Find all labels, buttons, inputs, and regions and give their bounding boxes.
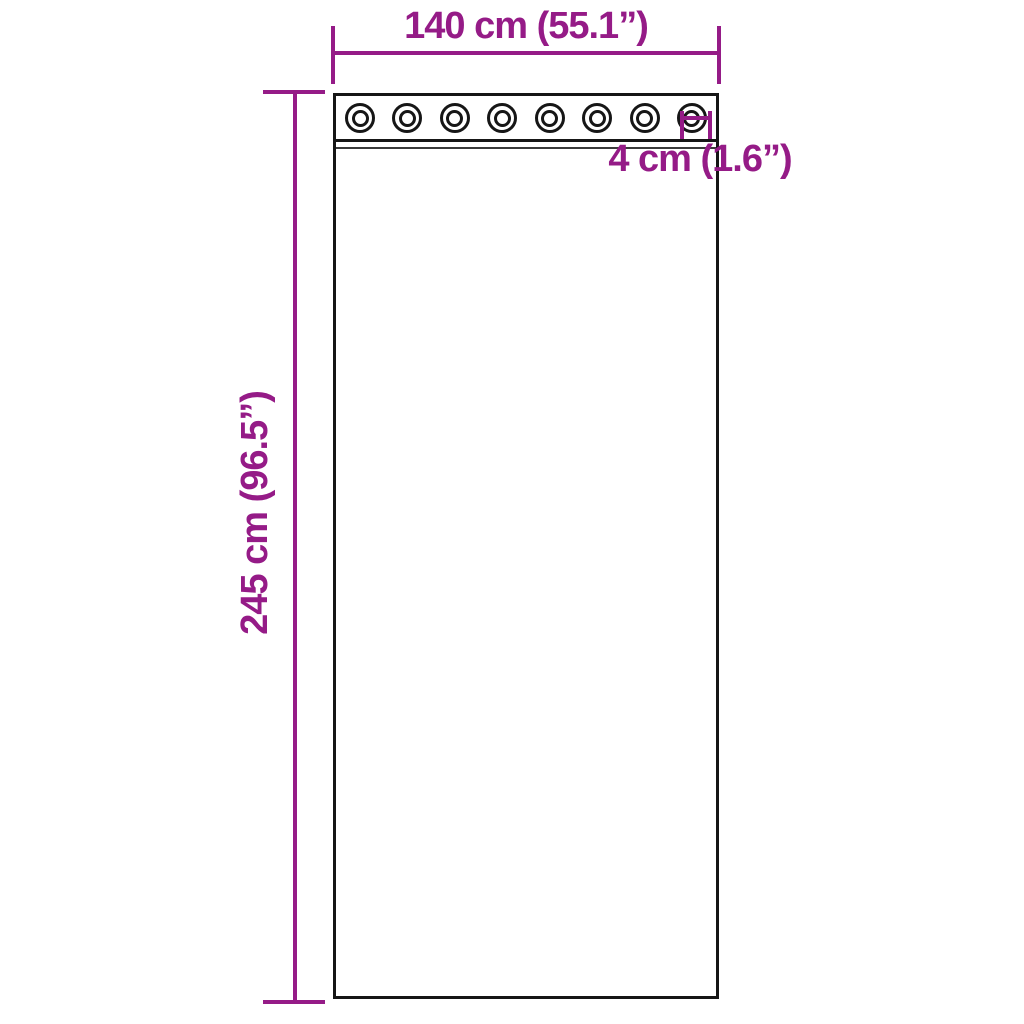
curtain-panel [333, 93, 719, 999]
grommet [345, 103, 375, 133]
grommet-dimension-label: 4 cm (1.6”) [600, 139, 800, 181]
grommet-row [336, 103, 716, 133]
grommet [440, 103, 470, 133]
grommet-hole [494, 110, 511, 127]
grommet [535, 103, 565, 133]
grommet-hole [636, 110, 653, 127]
grommet-hole [399, 110, 416, 127]
grommet [582, 103, 612, 133]
grommet-hole [541, 110, 558, 127]
grommet [630, 103, 660, 133]
height-dimension-label: 245 cm (96.5”) [235, 343, 279, 683]
height-dimension-tick-bottom [263, 1000, 325, 1004]
width-dimension-label: 140 cm (55.1”) [333, 6, 719, 48]
grommet-hole [352, 110, 369, 127]
width-dimension-line [333, 51, 719, 55]
grommet-hole [446, 110, 463, 127]
grommet-dimension-tick-right [708, 111, 712, 139]
curtain-dimension-diagram: 140 cm (55.1”) 245 cm (96.5”) 4 cm (1.6”… [0, 0, 1024, 1024]
height-dimension-line [293, 92, 297, 1004]
grommet [392, 103, 422, 133]
grommet-dimension-tick-left [680, 111, 684, 139]
height-dimension-tick-top [263, 90, 325, 94]
grommet-hole [589, 110, 606, 127]
grommet [487, 103, 517, 133]
